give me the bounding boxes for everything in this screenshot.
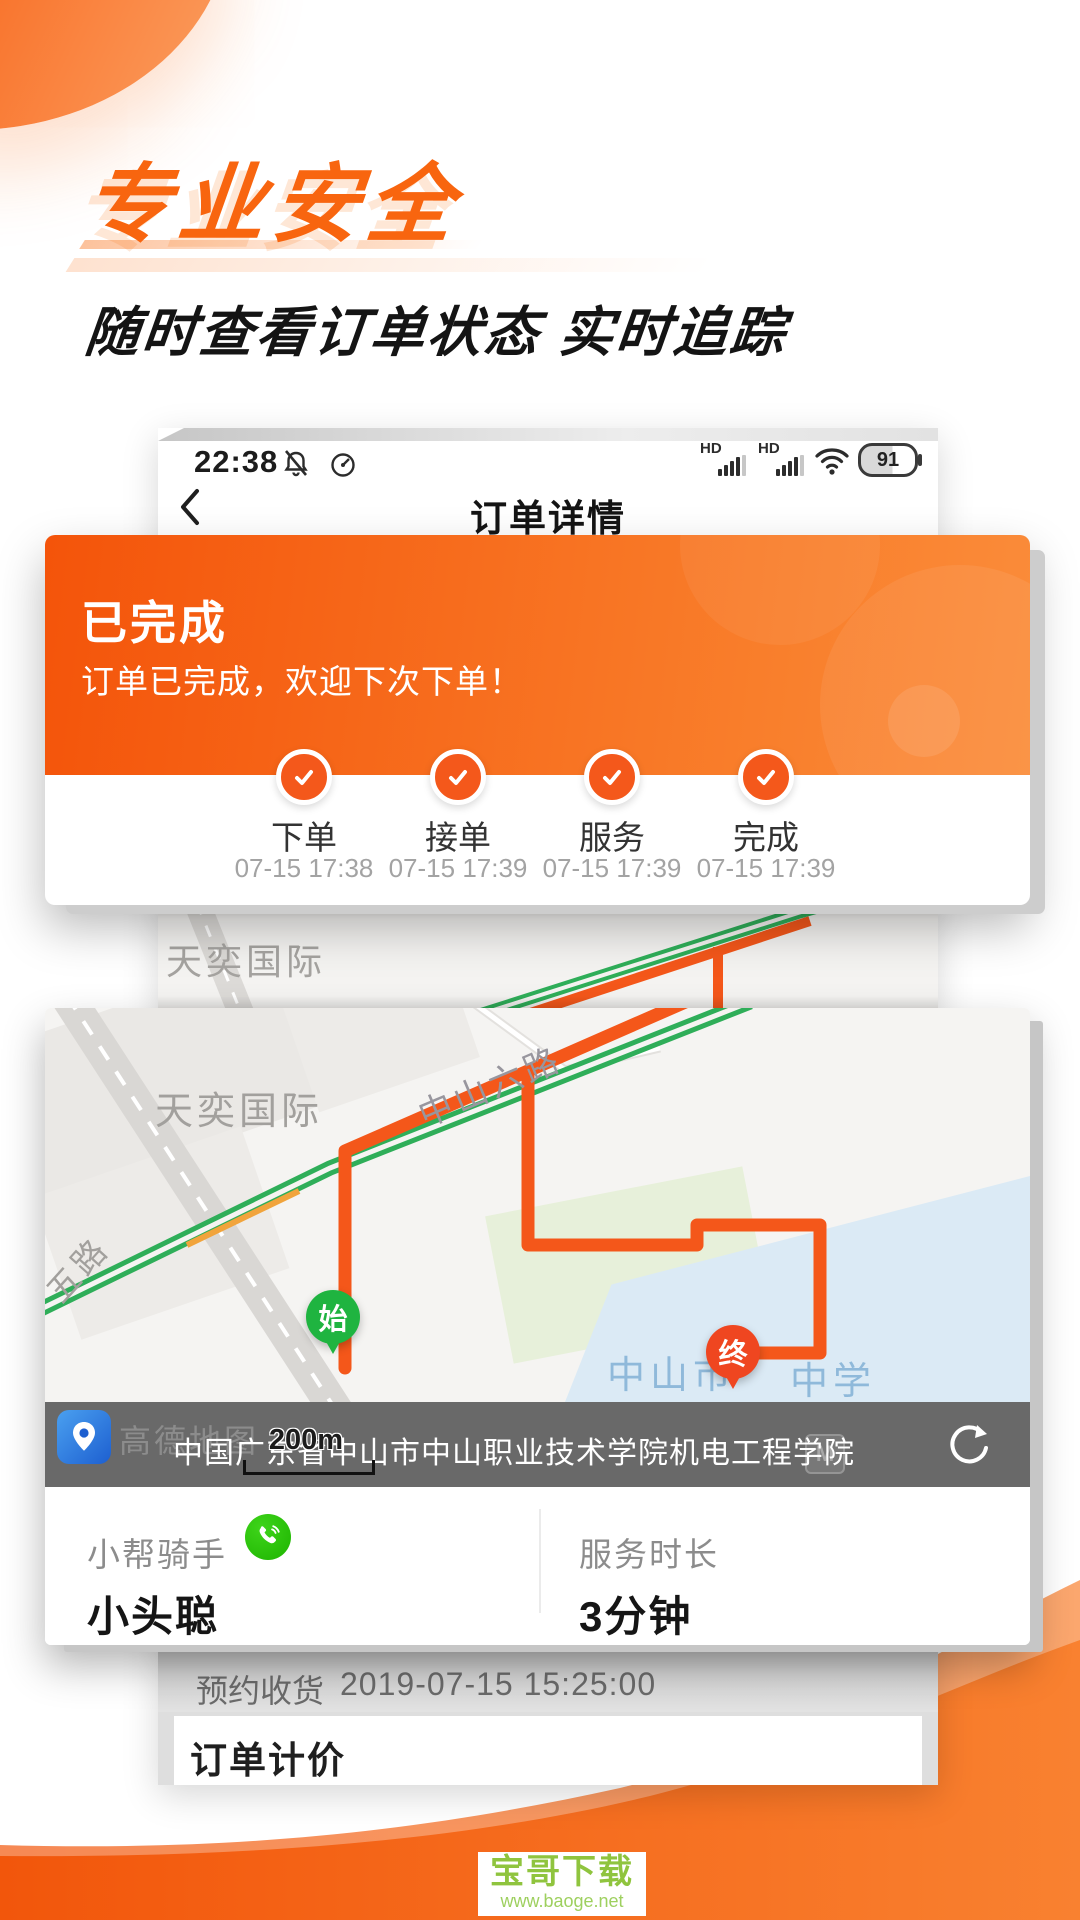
step-check-accept-order bbox=[430, 749, 486, 805]
wifi-icon bbox=[814, 446, 850, 481]
title-underline-2 bbox=[66, 258, 715, 272]
step-label: 接单 bbox=[388, 811, 528, 859]
duration-label: 服务时长 bbox=[579, 1528, 719, 1576]
order-pricing-title: 订单计价 bbox=[190, 1730, 346, 1784]
check-icon bbox=[753, 764, 779, 790]
check-icon bbox=[291, 764, 317, 790]
check-icon bbox=[445, 764, 471, 790]
watermark-name: 宝哥下载 bbox=[478, 1852, 646, 1892]
page-title: 专业安全 bbox=[79, 134, 468, 259]
start-pin: 始 bbox=[306, 1290, 360, 1344]
amap-logo-icon bbox=[57, 1410, 111, 1464]
step-label: 完成 bbox=[696, 811, 836, 859]
reserve-time-row: 预约收货 2019-07-15 15:25:00 bbox=[158, 1650, 938, 1712]
mute-bell-icon bbox=[282, 448, 310, 485]
map-viewport[interactable]: 天奕国际 中山六路 五路 中山市 中学 始 终 bbox=[45, 1008, 1030, 1402]
phone-icon bbox=[254, 1523, 282, 1551]
order-pricing-section: 订单计价 bbox=[174, 1716, 922, 1785]
signal-hd-icon: HD bbox=[700, 442, 746, 476]
rider-info-section: 小帮骑手 小头聪 服务时长 3分钟 bbox=[45, 1487, 1030, 1645]
duration-value: 3分钟 bbox=[579, 1583, 692, 1644]
refresh-icon bbox=[945, 1420, 993, 1468]
step-time: 07-15 17:39 bbox=[666, 853, 866, 884]
refresh-button[interactable] bbox=[945, 1420, 993, 1468]
order-detail-rows: 预约收货 2019-07-15 15:25:00 订单计价 bbox=[158, 1650, 938, 1785]
map-scale-bar bbox=[243, 1460, 375, 1475]
reserve-time-label: 预约收货 bbox=[196, 1666, 324, 1712]
order-status-header: 已完成 订单已完成，欢迎下次下单！ bbox=[45, 535, 1030, 775]
rider-name: 小头聪 bbox=[87, 1583, 219, 1644]
phone-top-edge bbox=[158, 428, 938, 441]
corner-blob bbox=[0, 0, 230, 130]
step-label: 服务 bbox=[542, 811, 682, 859]
check-icon bbox=[599, 764, 625, 790]
watermark-url: www.baoge.net bbox=[478, 1892, 646, 1910]
end-pin: 终 bbox=[706, 1325, 760, 1379]
map-scale-label: 200m bbox=[241, 1424, 371, 1457]
metro-station-icon: M bbox=[805, 1434, 845, 1474]
map-school-label-right: 中学 bbox=[790, 1350, 876, 1402]
vertical-divider bbox=[539, 1509, 541, 1613]
status-time: 22:38 bbox=[194, 444, 278, 480]
route-map-card: 天奕国际 中山六路 五路 中山市 中学 始 终 高德地图 中国广东省中山市中山职… bbox=[45, 1008, 1030, 1645]
rider-label: 小帮骑手 bbox=[87, 1528, 227, 1576]
step-check-complete bbox=[738, 749, 794, 805]
map-district-label: 天奕国际 bbox=[155, 1080, 323, 1135]
nav-title: 订单详情 bbox=[158, 488, 938, 542]
order-status-card: 已完成 订单已完成，欢迎下次下单！ 下单 接单 服务 完成 07-15 17:3… bbox=[45, 535, 1030, 905]
page-subtitle: 随时查看订单状态 实时追踪 bbox=[82, 288, 792, 367]
battery-level: 91 bbox=[877, 449, 899, 471]
order-state-message: 订单已完成，欢迎下次下单！ bbox=[81, 655, 523, 703]
battery-icon: 91 bbox=[858, 443, 918, 477]
order-state: 已完成 bbox=[81, 587, 228, 653]
map-background-strip: 天奕国际 bbox=[158, 905, 938, 1008]
phone-call-button[interactable] bbox=[245, 1514, 291, 1560]
address-bar: 高德地图 中国广东省中山市中山职业技术学院机电工程学院 M bbox=[45, 1402, 1030, 1487]
site-watermark: 宝哥下载 www.baoge.net bbox=[478, 1852, 646, 1916]
map-district-label-bg: 天奕国际 bbox=[166, 933, 326, 985]
step-check-service bbox=[584, 749, 640, 805]
reserve-time-value: 2019-07-15 15:25:00 bbox=[340, 1666, 656, 1703]
data-saver-icon bbox=[328, 449, 358, 484]
signal-hd-icon-2: HD bbox=[758, 442, 804, 476]
step-label: 下单 bbox=[234, 811, 374, 859]
step-check-place-order bbox=[276, 749, 332, 805]
